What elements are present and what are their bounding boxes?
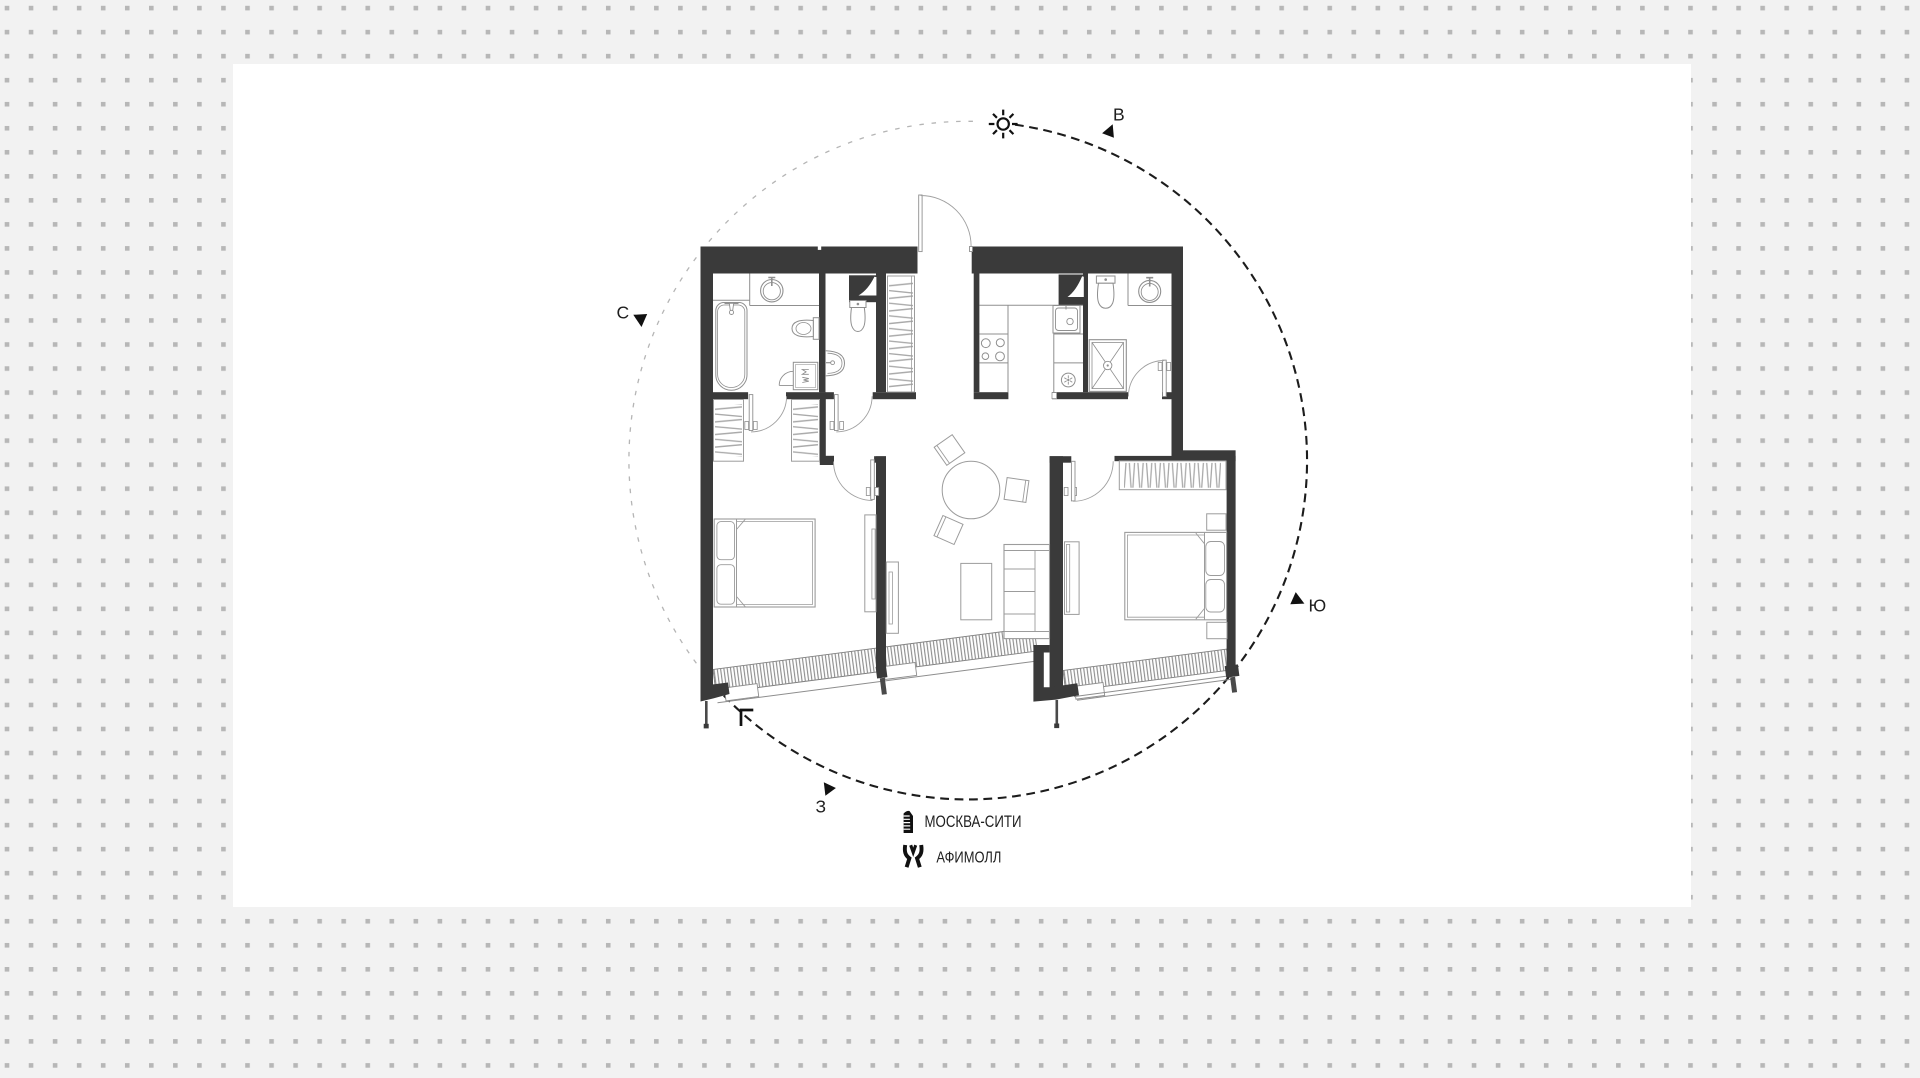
- svg-text:АФИМОЛЛ: АФИМОЛЛ: [936, 850, 1001, 867]
- svg-text:МОСКВА-СИТИ: МОСКВА-СИТИ: [925, 813, 1022, 831]
- svg-text:Ю: Ю: [1309, 596, 1327, 616]
- svg-text:В: В: [1113, 105, 1125, 125]
- svg-text:З: З: [816, 797, 827, 817]
- svg-text:С: С: [617, 302, 630, 322]
